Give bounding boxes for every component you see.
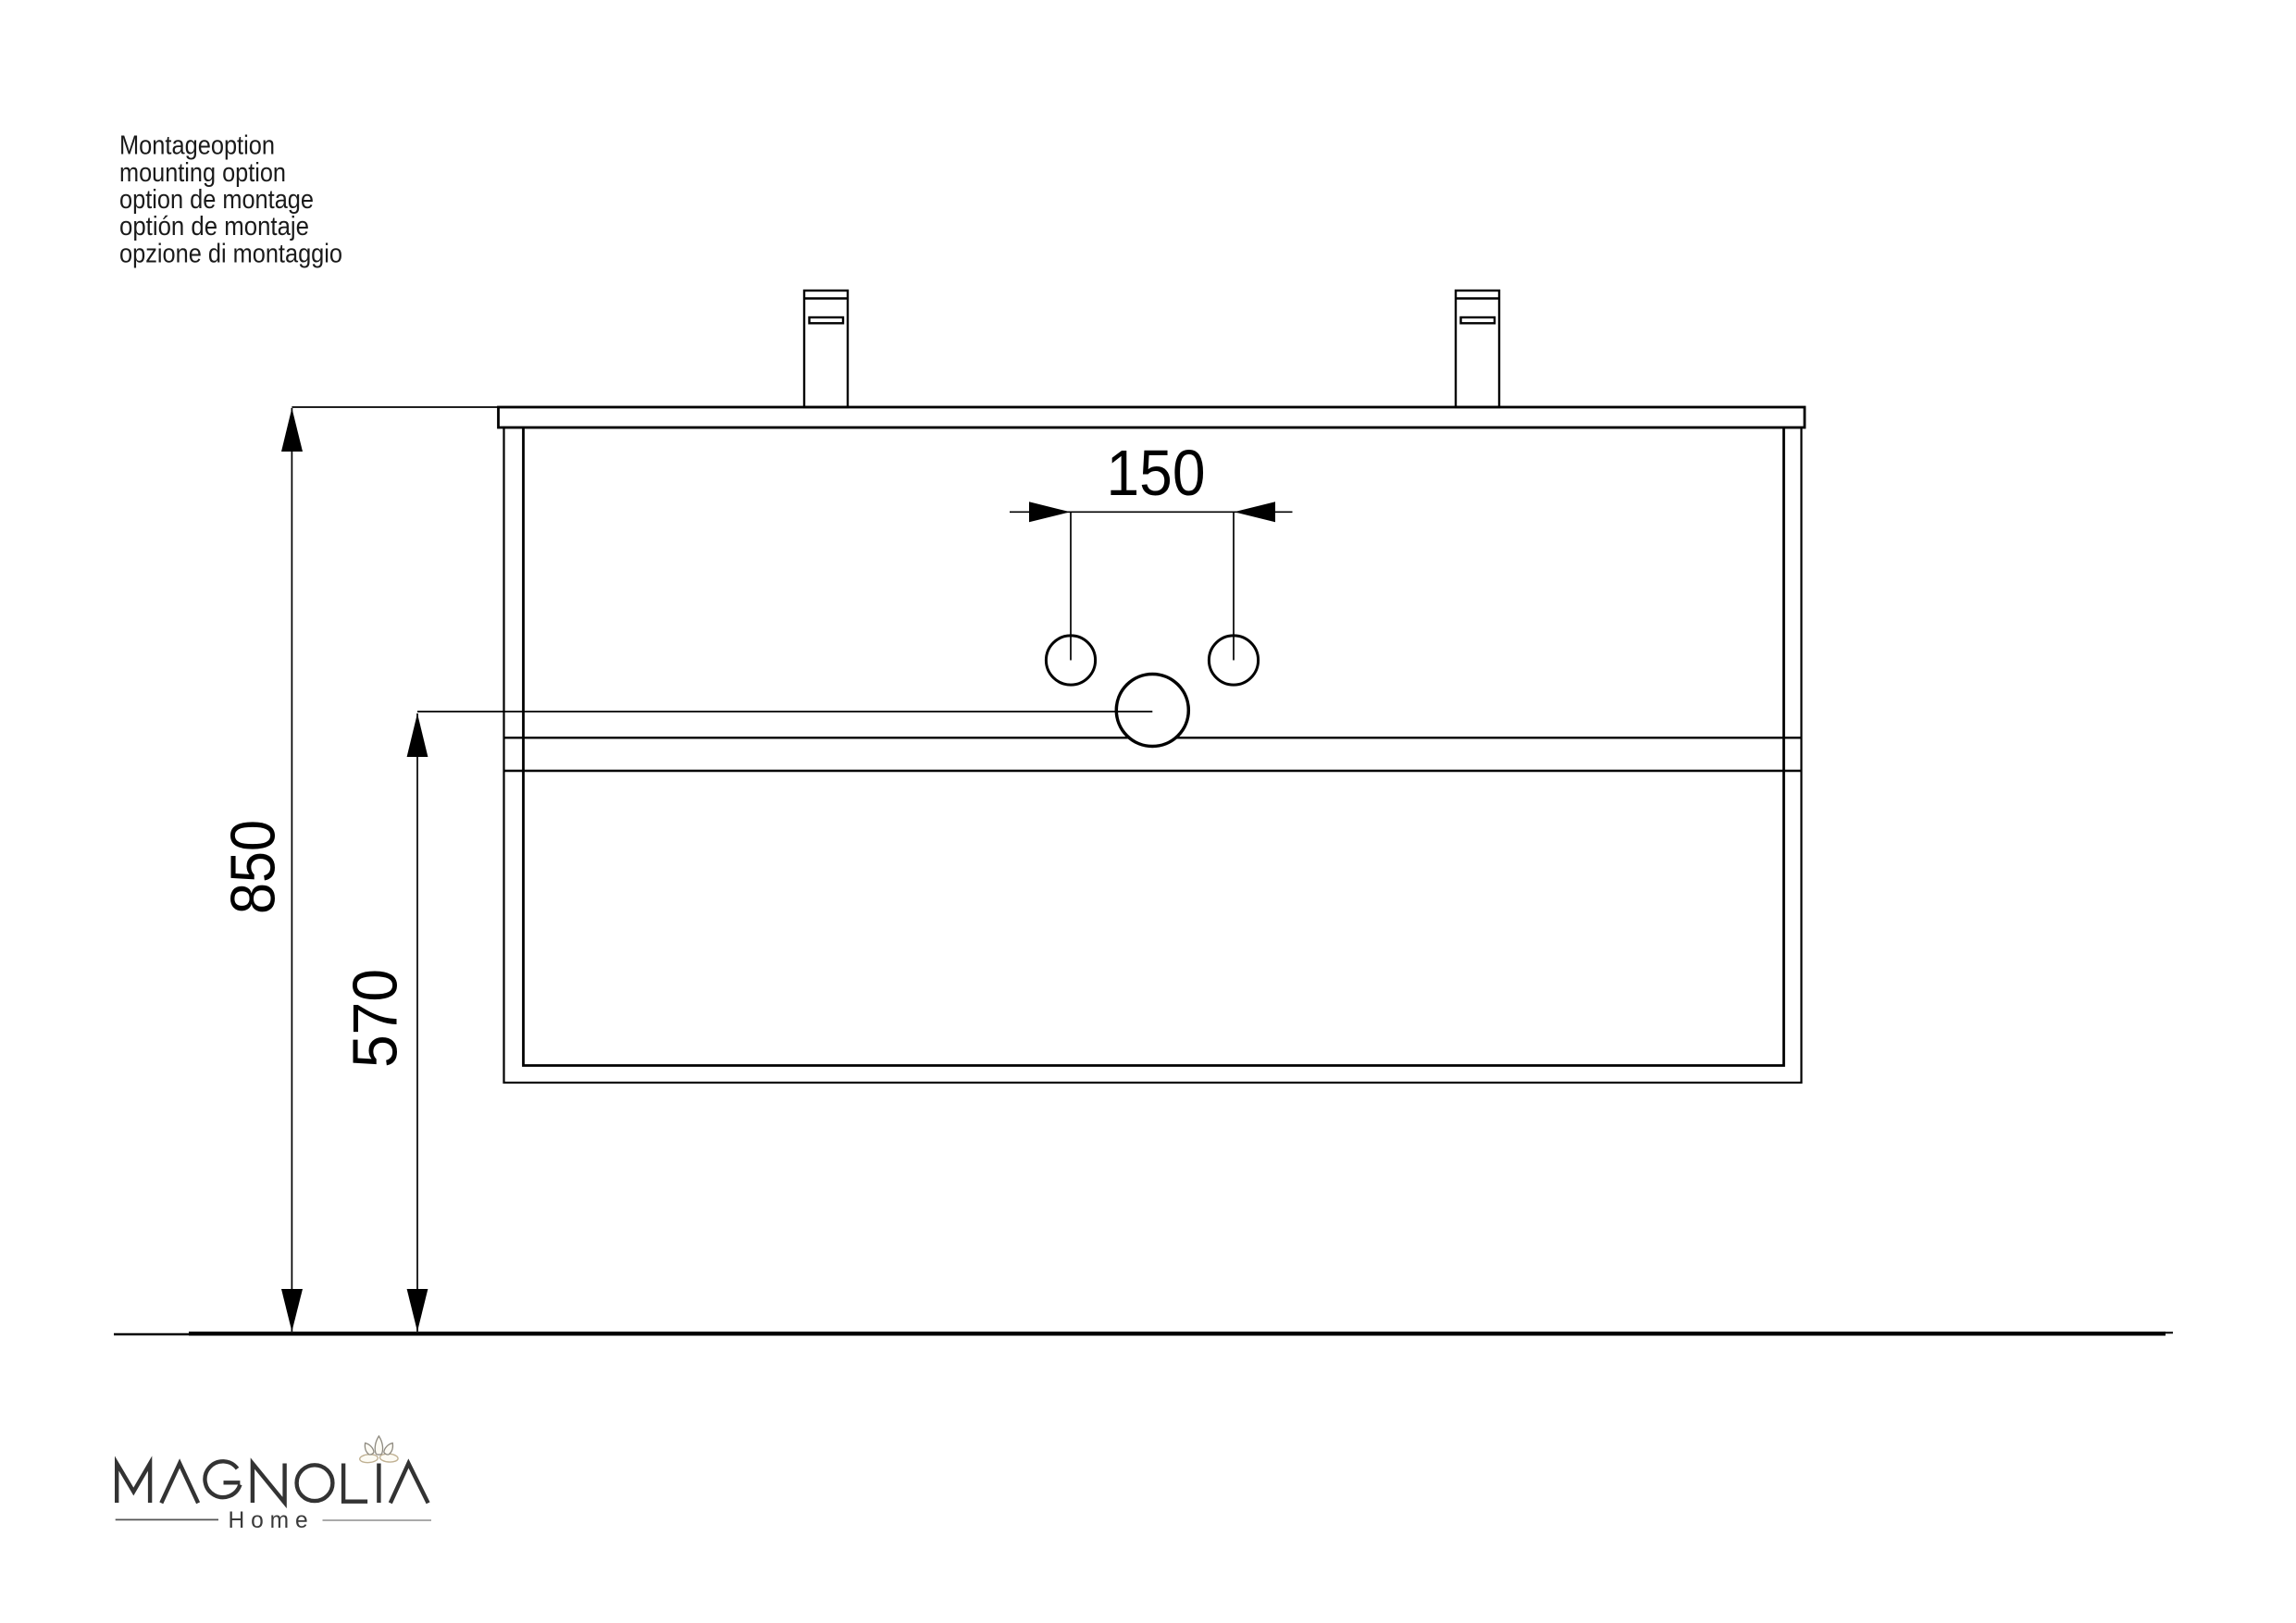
svg-text:150: 150	[1107, 437, 1206, 509]
svg-text:mounting option: mounting option	[119, 158, 286, 188]
svg-text:option de montage: option de montage	[119, 185, 314, 215]
svg-text:optión de montaje: optión de montaje	[119, 212, 309, 242]
svg-text:570: 570	[341, 969, 411, 1068]
svg-text:opzione di montaggio: opzione di montaggio	[119, 239, 342, 268]
svg-text:850: 850	[218, 820, 289, 914]
svg-text:Home: Home	[229, 1507, 315, 1533]
svg-text:Montageoption: Montageoption	[119, 131, 275, 161]
